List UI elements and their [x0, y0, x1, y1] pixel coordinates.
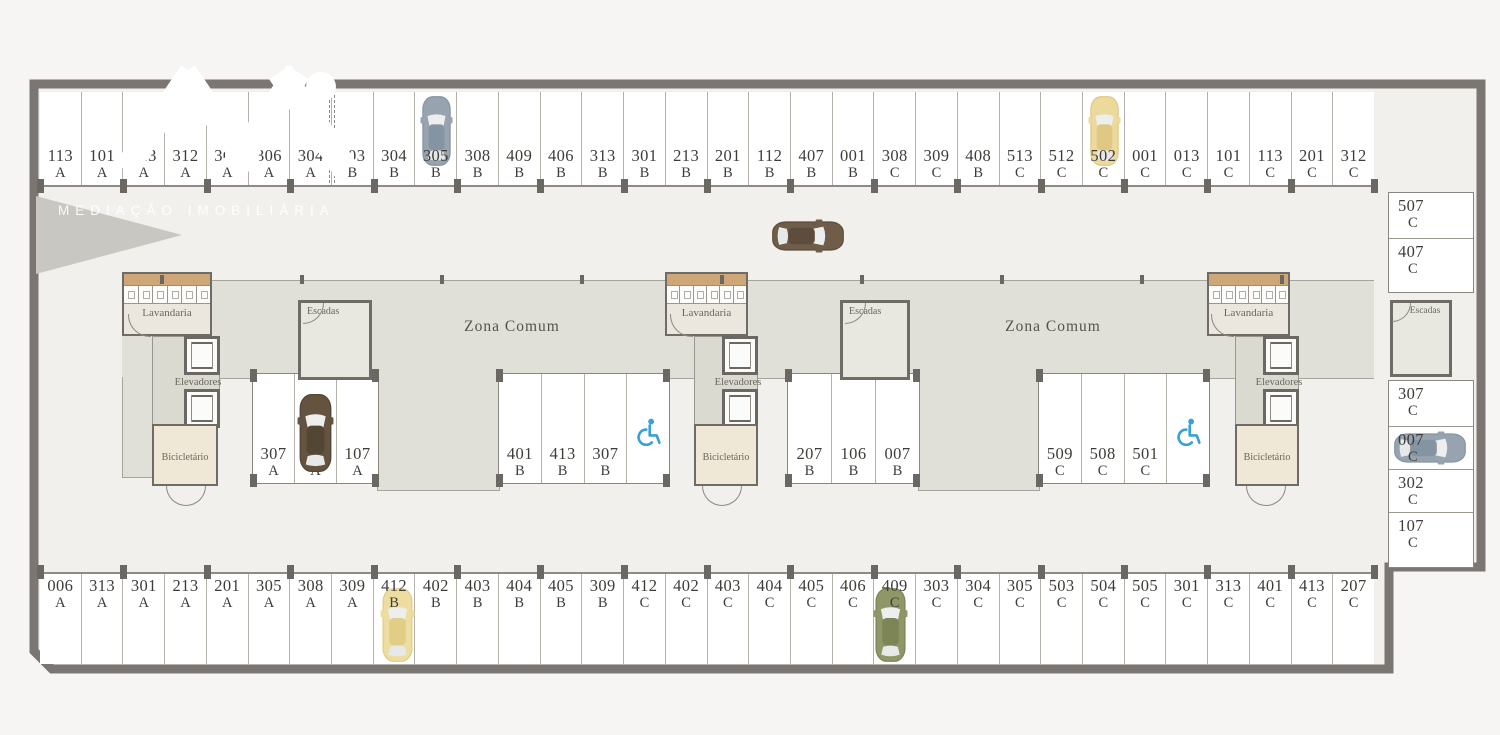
stall-label: 407C	[1398, 244, 1424, 277]
wall-stud	[287, 179, 294, 193]
stall-number: 106	[832, 446, 875, 463]
stall-label: 301B	[624, 148, 665, 181]
stall-letter: B	[791, 165, 832, 181]
wall-stud	[663, 369, 670, 382]
stall-number: 308	[874, 148, 915, 165]
stall-label: 106B	[832, 446, 875, 479]
wall-stud	[287, 565, 294, 579]
parking-stall: 301B	[624, 92, 666, 185]
stall-letter: A	[82, 165, 123, 181]
stall-number: 409	[499, 148, 540, 165]
stall-letter: C	[833, 595, 874, 611]
wheelchair-icon	[1176, 418, 1201, 451]
stall-number: 307	[585, 446, 627, 463]
stall-letter: C	[1125, 165, 1166, 181]
stall-label: 101C	[1208, 148, 1249, 181]
parking-stall: 308C	[874, 92, 916, 185]
wall-stud	[621, 565, 628, 579]
parking-stall: 412C	[624, 574, 666, 664]
stall-number: 001	[833, 148, 874, 165]
parking-stall: 312C	[1333, 92, 1374, 185]
stall-label: 307C	[1398, 386, 1424, 419]
stall-number: 403	[457, 578, 498, 595]
parking-stall: 201A	[207, 574, 249, 664]
bicicletario-room: Bicicletário	[694, 424, 758, 486]
stall-letter: A	[123, 595, 164, 611]
stall-label: 307A	[253, 446, 294, 479]
stall-label: 312A	[165, 148, 206, 181]
wall-stud	[704, 179, 711, 193]
parking-stall: 107A	[337, 374, 378, 483]
parking-stall: 508C	[1082, 374, 1125, 483]
stall-label: 303C	[916, 578, 957, 611]
wall-stud	[1203, 369, 1210, 382]
elevator-shaft	[722, 389, 758, 428]
parking-stall: 407C	[1389, 239, 1473, 290]
stall-letter: B	[541, 165, 582, 181]
stall-letter: B	[788, 463, 831, 479]
elevadores-label: Elevadores	[689, 377, 787, 388]
wall-stud	[1036, 474, 1043, 487]
parking-stall: 507C	[1389, 193, 1473, 239]
stall-number: 512	[1041, 148, 1082, 165]
stall-number: 303	[916, 578, 957, 595]
stall-letter: C	[1250, 595, 1291, 611]
wall-stud	[954, 179, 961, 193]
stall-number: 413	[1292, 578, 1333, 595]
stall-letter: C	[1333, 595, 1374, 611]
elevator-shaft	[1263, 336, 1299, 375]
stall-label: 113C	[1250, 148, 1291, 181]
parking-stall: 509C	[1039, 374, 1082, 483]
washing-machines	[667, 286, 746, 304]
stall-letter: A	[165, 595, 206, 611]
stall-label: 404B	[499, 578, 540, 611]
stall-label: 409B	[499, 148, 540, 181]
parking-stall: 501C	[1125, 374, 1168, 483]
stall-letter: B	[749, 165, 790, 181]
parking-stall: 309A	[332, 574, 374, 664]
stall-label: 107C	[1398, 518, 1424, 551]
stall-label: 402C	[666, 578, 707, 611]
wall-stud	[580, 275, 584, 284]
stall-letter: C	[1000, 595, 1041, 611]
stall-label: 302C	[1398, 475, 1424, 508]
parking-stall: 006A	[40, 574, 82, 664]
parking-stall: 404B	[499, 574, 541, 664]
stall-number: 304	[374, 148, 415, 165]
stall-label: 305B	[415, 148, 456, 181]
bicicletario-label: Bicicletário	[154, 452, 216, 463]
washing-machine	[720, 286, 733, 303]
parking-stall: 301A	[123, 574, 165, 664]
stall-label: 512C	[1041, 148, 1082, 181]
wall-stud	[720, 275, 724, 284]
parking-stall: 101C	[1208, 92, 1250, 185]
stall-letter: A	[165, 165, 206, 181]
stall-letter: C	[1208, 595, 1249, 611]
parking-stall: 101A	[82, 92, 124, 185]
stall-letter: C	[1166, 595, 1207, 611]
stall-number: 213	[165, 578, 206, 595]
stall-label: 412C	[624, 578, 665, 611]
stall-label: 309A	[332, 578, 373, 611]
stall-label: 301A	[123, 578, 164, 611]
stall-number: 312	[1333, 148, 1374, 165]
elevadores-label: Elevadores	[147, 377, 249, 388]
parking-stall: 213B	[666, 92, 708, 185]
parking-stall: 307C	[1389, 381, 1473, 427]
stall-label: 305C	[1000, 578, 1041, 611]
wall-stud	[372, 369, 379, 382]
stall-number: 404	[499, 578, 540, 595]
zona-comum-area	[918, 377, 1040, 491]
parking-stall: 405C	[791, 574, 833, 664]
stall-number: 513	[1000, 148, 1041, 165]
watermark-brand-text: MEDIAÇÃO IMOBILIÁRIA	[58, 203, 335, 218]
stall-label: 309B	[582, 578, 623, 611]
stall-letter: C	[666, 595, 707, 611]
washing-machine	[734, 286, 746, 303]
bicicletario-room: Bicicletário	[152, 424, 218, 486]
elevadores-label: Elevadores	[1230, 377, 1328, 388]
wall-stud	[120, 565, 127, 579]
stall-number: 006	[40, 578, 81, 595]
stall-number: 502	[1083, 148, 1124, 165]
stall-number: 309	[582, 578, 623, 595]
stall-label: 013C	[1166, 148, 1207, 181]
stall-number: 113	[40, 148, 81, 165]
parking-stall: 409B	[499, 92, 541, 185]
wall-stud	[954, 565, 961, 579]
parking-stall: 106B	[832, 374, 876, 483]
car-brown-island	[297, 387, 334, 479]
stall-label: 304C	[958, 578, 999, 611]
wood-counter	[124, 274, 210, 286]
wall-stud	[371, 179, 378, 193]
parking-stall: 309C	[916, 92, 958, 185]
stall-number: 406	[833, 578, 874, 595]
stall-number: 001	[1125, 148, 1166, 165]
stall-number: 402	[415, 578, 456, 595]
stall-number: 401	[1250, 578, 1291, 595]
stall-number: 007	[876, 446, 919, 463]
parking-stall: 304C	[958, 574, 1000, 664]
stall-number: 201	[1292, 148, 1333, 165]
stall-number: 313	[82, 578, 123, 595]
washing-machine	[139, 286, 154, 303]
wall-stud	[621, 179, 628, 193]
washing-machines	[124, 286, 210, 304]
stall-number: 504	[1083, 578, 1124, 595]
stall-label: 207B	[788, 446, 831, 479]
stall-label: 313C	[1208, 578, 1249, 611]
stall-letter: B	[374, 595, 415, 611]
stall-letter: C	[1398, 215, 1424, 231]
washing-machine	[1236, 286, 1249, 303]
stall-letter: C	[1082, 463, 1124, 479]
stall-letter: B	[499, 595, 540, 611]
wall-stud	[496, 474, 503, 487]
wall-stud	[1371, 565, 1378, 579]
stall-letter: C	[1292, 595, 1333, 611]
stall-label: 502C	[1083, 148, 1124, 181]
stall-number: 309	[332, 578, 373, 595]
stall-number: 213	[666, 148, 707, 165]
stall-number: 107	[1398, 518, 1424, 535]
wall-stud	[1000, 275, 1004, 284]
stall-number: 301	[624, 148, 665, 165]
stall-number: 308	[290, 578, 331, 595]
stall-letter: B	[542, 463, 584, 479]
stall-number: 401	[499, 446, 541, 463]
stall-label: 408B	[958, 148, 999, 181]
stall-letter: C	[1083, 165, 1124, 181]
wall-stud	[250, 474, 257, 487]
stall-letter: C	[1398, 261, 1424, 277]
stall-letter: A	[290, 165, 331, 181]
parking-stall: 404C	[749, 574, 791, 664]
bicicletario-room: Bicicletário	[1235, 424, 1299, 486]
stall-letter: A	[40, 165, 81, 181]
stall-letter: B	[585, 463, 627, 479]
stall-letter: C	[916, 595, 957, 611]
parking-stall: 505C	[1125, 574, 1167, 664]
parking-stall: 403B	[457, 574, 499, 664]
stall-number: 201	[207, 578, 248, 595]
stall-label: 513C	[1000, 148, 1041, 181]
stall-number: 101	[1208, 148, 1249, 165]
stall-letter: C	[1166, 165, 1207, 181]
washing-machine	[197, 286, 211, 303]
zona-comum-label: Zona Comum	[432, 318, 592, 336]
stall-number: 508	[1082, 446, 1124, 463]
stall-label: 305A	[249, 578, 290, 611]
stall-letter: C	[1041, 165, 1082, 181]
bicicletario-label: Bicicletário	[1237, 452, 1297, 463]
wall-stud	[1204, 179, 1211, 193]
stall-number: 308	[457, 148, 498, 165]
wall-stud	[440, 275, 444, 284]
stall-label: 404C	[749, 578, 790, 611]
stall-label: 201C	[1292, 148, 1333, 181]
stall-label: 307B	[585, 446, 627, 479]
stall-letter: B	[666, 165, 707, 181]
washing-machine	[1222, 286, 1235, 303]
stall-label: 403C	[708, 578, 749, 611]
parking-stall: 307B	[585, 374, 628, 483]
stall-letter: C	[1208, 165, 1249, 181]
parking-stall: 013C	[1166, 92, 1208, 185]
wall-stud	[1038, 565, 1045, 579]
washing-machine	[1209, 286, 1222, 303]
stall-letter: C	[1039, 463, 1081, 479]
stall-label: 503C	[1041, 578, 1082, 611]
stall-label: 413B	[542, 446, 584, 479]
stall-number: 307	[253, 446, 294, 463]
washing-machine	[168, 286, 183, 303]
stall-label: 113A	[40, 148, 81, 181]
parking-stall: 504C	[1083, 574, 1125, 664]
parking-stall: 207C	[1333, 574, 1374, 664]
stall-number: 503	[1041, 578, 1082, 595]
wall-stud	[250, 369, 257, 382]
stall-label: 304B	[374, 148, 415, 181]
stall-letter: C	[1333, 165, 1374, 181]
wall-stud	[871, 565, 878, 579]
stall-label: 403B	[457, 578, 498, 611]
stall-label: 313B	[582, 148, 623, 181]
parking-stall: 413C	[1292, 574, 1334, 664]
stall-letter: C	[1398, 449, 1424, 465]
stall-label: 504C	[1083, 578, 1124, 611]
stall-label: 509C	[1039, 446, 1081, 479]
stall-letter: C	[1041, 595, 1082, 611]
wall-stud	[37, 179, 44, 193]
stall-label: 308A	[290, 578, 331, 611]
parking-stall: 207B	[788, 374, 832, 483]
wall-stud	[1288, 179, 1295, 193]
stall-label: 401B	[499, 446, 541, 479]
parking-stall: 401C	[1250, 574, 1292, 664]
stall-label: 313A	[82, 578, 123, 611]
parking-stall: 201B	[708, 92, 750, 185]
stall-letter: C	[874, 165, 915, 181]
stall-letter: C	[1250, 165, 1291, 181]
parking-stall: 001C	[1125, 92, 1167, 185]
parking-stall: 112B	[749, 92, 791, 185]
watermark-logo-stroke	[306, 72, 336, 102]
wall-stud	[537, 179, 544, 193]
wall-stud	[785, 369, 792, 382]
stall-number: 405	[541, 578, 582, 595]
parking-stall: 313C	[1208, 574, 1250, 664]
stall-number: 207	[1333, 578, 1374, 595]
stall-letter: B	[582, 595, 623, 611]
stall-letter: C	[791, 595, 832, 611]
stall-number: 113	[1250, 148, 1291, 165]
wall-stud	[1203, 474, 1210, 487]
wall-stud	[1038, 179, 1045, 193]
stall-letter: B	[832, 463, 875, 479]
stall-number: 507	[1398, 198, 1424, 215]
stall-label: 001C	[1125, 148, 1166, 181]
stall-label: 406C	[833, 578, 874, 611]
parking-stall: 503C	[1041, 574, 1083, 664]
stall-letter: C	[1083, 595, 1124, 611]
wall-stud	[1280, 275, 1284, 284]
parking-stall: 313B	[582, 92, 624, 185]
parking-stall: 113A	[40, 92, 82, 185]
stall-label: 406B	[541, 148, 582, 181]
parking-stall: 403C	[708, 574, 750, 664]
stall-label: 213A	[165, 578, 206, 611]
parking-stall: 113C	[1250, 92, 1292, 185]
stall-label: 413C	[1292, 578, 1333, 611]
stall-number: 404	[749, 578, 790, 595]
parking-island-right: 509C508C501C	[1038, 373, 1210, 484]
stall-number: 013	[1166, 148, 1207, 165]
stall-letter: B	[582, 165, 623, 181]
stall-label: 201A	[207, 578, 248, 611]
stall-letter: A	[207, 595, 248, 611]
washing-machine	[680, 286, 693, 303]
parking-stall: 402B	[415, 574, 457, 664]
zona-comum-label: Zona Comum	[973, 318, 1133, 336]
stall-letter: B	[958, 165, 999, 181]
stall-number: 403	[708, 578, 749, 595]
stall-label: 001B	[833, 148, 874, 181]
parking-stall: 304B	[374, 92, 416, 185]
stall-number: 505	[1125, 578, 1166, 595]
stall-number: 407	[791, 148, 832, 165]
parking-stall: 301C	[1166, 574, 1208, 664]
stall-letter: C	[1398, 492, 1424, 508]
stall-label: 312C	[1333, 148, 1374, 181]
zona-comum-area	[377, 377, 500, 491]
wall-stud	[1371, 179, 1378, 193]
stall-label: 006A	[40, 578, 81, 611]
stall-number: 305	[415, 148, 456, 165]
stall-number: 301	[123, 578, 164, 595]
wall-stud	[160, 275, 164, 284]
stall-number: 412	[374, 578, 415, 595]
parking-stall: 406C	[833, 574, 875, 664]
stall-label: 201B	[708, 148, 749, 181]
washing-machine	[1249, 286, 1262, 303]
stall-number: 201	[708, 148, 749, 165]
stall-number: 302	[1398, 475, 1424, 492]
wall-stud	[787, 179, 794, 193]
stall-number: 313	[582, 148, 623, 165]
stall-label: 508C	[1082, 446, 1124, 479]
stall-label: 402B	[415, 578, 456, 611]
stall-number: 408	[958, 148, 999, 165]
stall-label: 401C	[1250, 578, 1291, 611]
parking-floor-plan: Zona Comum Zona Comum 113A101A013A312A30…	[0, 0, 1500, 735]
stall-number: 313	[1208, 578, 1249, 595]
wall-stud	[204, 565, 211, 579]
stall-number: 413	[542, 446, 584, 463]
parking-stall: 305A	[249, 574, 291, 664]
stall-letter: B	[833, 165, 874, 181]
stall-letter: C	[1292, 165, 1333, 181]
parking-stall: 107C	[1389, 513, 1473, 565]
wall-stud	[1121, 179, 1128, 193]
wall-stud	[454, 565, 461, 579]
stall-number: 402	[666, 578, 707, 595]
parking-stall: 407B	[791, 92, 833, 185]
parking-stall: 007B	[876, 374, 919, 483]
washing-machine	[694, 286, 707, 303]
accessible-parking-stall	[1167, 374, 1209, 483]
stall-label: 007C	[1398, 432, 1424, 465]
elevator-shaft	[722, 336, 758, 375]
stall-number: 406	[541, 148, 582, 165]
stall-number: 305	[249, 578, 290, 595]
wall-stud	[1288, 565, 1295, 579]
stall-label: 308C	[874, 148, 915, 181]
parking-stall: 309B	[582, 574, 624, 664]
elevator-shaft	[184, 336, 220, 375]
stall-letter: C	[1125, 595, 1166, 611]
stall-letter: C	[1398, 403, 1424, 419]
stall-letter: C	[708, 595, 749, 611]
stall-letter: C	[1000, 165, 1041, 181]
bicicletario-label: Bicicletário	[696, 452, 756, 463]
parking-stall: 402C	[666, 574, 708, 664]
stall-label: 505C	[1125, 578, 1166, 611]
